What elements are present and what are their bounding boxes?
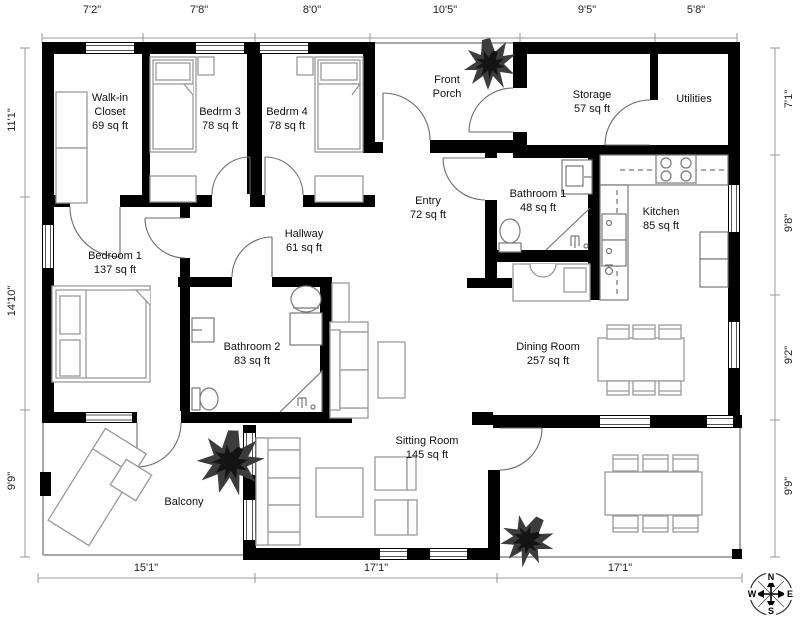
room-name: Utilities	[659, 93, 729, 107]
compass-south-label: S	[768, 606, 774, 616]
bed-bedrm3	[150, 57, 196, 152]
compass-rose: N S W E	[746, 571, 796, 617]
room-label-entry: Entry 72 sq ft	[393, 195, 463, 223]
room-name: Kitchen	[626, 206, 696, 220]
loveseat	[330, 283, 405, 418]
room-name: Bedrm 4	[252, 106, 322, 120]
room-label-sitting-room: Sitting Room 145 sq ft	[372, 435, 482, 463]
dim-right-3: 9'2"	[783, 329, 795, 381]
sofa	[256, 438, 300, 545]
room-area: 137 sq ft	[70, 264, 160, 278]
dim-top-2: 7'8"	[169, 4, 229, 16]
compass-west-label: W	[748, 589, 757, 599]
room-label-dining-room: Dining Room 257 sq ft	[498, 341, 598, 369]
ruler-bottom	[38, 573, 742, 583]
dim-top-1: 7'2"	[62, 4, 122, 16]
dim-left-3: 9'9"	[6, 455, 18, 507]
room-name: Bedrm 3	[185, 106, 255, 120]
floor-plan: N S W E 7'2" 7'8" 8'0" 10'5" 9'5" 5'8" 1…	[0, 0, 800, 619]
dresser-bedrm3	[150, 176, 196, 202]
room-name: Entry	[393, 195, 463, 209]
room-area: 257 sq ft	[498, 355, 598, 369]
room-area: 72 sq ft	[393, 209, 463, 223]
room-name: Hallway	[264, 228, 344, 242]
dim-top-5: 9'5"	[557, 4, 617, 16]
patio-table	[605, 455, 702, 532]
room-label-storage: Storage 57 sq ft	[557, 89, 627, 117]
room-name: Dining Room	[498, 341, 598, 355]
ruler-left	[20, 48, 30, 557]
room-area: 78 sq ft	[185, 120, 255, 134]
room-name: Sitting Room	[372, 435, 482, 449]
room-name: Bedroom 1	[70, 250, 160, 264]
dining-table	[598, 325, 684, 395]
room-label-utilities: Utilities	[659, 93, 729, 107]
room-name: Storage	[557, 89, 627, 103]
ruler-right	[770, 48, 780, 557]
dim-right-2: 9'8"	[783, 197, 795, 249]
lounge-chair	[48, 429, 152, 546]
room-area: 57 sq ft	[557, 103, 627, 117]
dim-top-3: 8'0"	[282, 4, 342, 16]
dim-right-1: 7'1"	[783, 73, 795, 125]
room-area: 83 sq ft	[212, 355, 292, 369]
room-label-bedrm3: Bedrm 3 78 sq ft	[185, 106, 255, 134]
desk-chair	[513, 264, 590, 301]
room-label-walk-in-closet: Walk-in Closet 69 sq ft	[80, 92, 140, 133]
room-name: Balcony	[144, 496, 224, 510]
ruler-top	[42, 33, 737, 43]
room-label-kitchen: Kitchen 85 sq ft	[626, 206, 696, 234]
room-name: Bathroom 1	[493, 188, 583, 202]
room-area: 69 sq ft	[80, 120, 140, 134]
room-area: 145 sq ft	[372, 449, 482, 463]
room-label-bathroom1: Bathroom 1 48 sq ft	[493, 188, 583, 216]
room-label-balcony: Balcony	[144, 496, 224, 510]
dim-left-1: 11'1"	[6, 94, 18, 146]
dim-bottom-3: 17'1"	[590, 562, 650, 574]
door-sitting-patio	[500, 428, 542, 470]
coffee-table	[316, 468, 363, 517]
door-bedrm3	[212, 157, 250, 195]
fridge	[700, 232, 728, 287]
room-label-hallway: Hallway 61 sq ft	[264, 228, 344, 256]
room-name: Front Porch	[422, 74, 472, 102]
nightstand-bedrm4	[297, 57, 313, 75]
door-bathroom1	[443, 158, 485, 200]
door-balcony	[137, 423, 181, 467]
door-bedrm4	[265, 157, 303, 195]
room-label-bedrm4: Bedrm 4 78 sq ft	[252, 106, 322, 134]
room-label-bathroom2: Bathroom 2 83 sq ft	[212, 341, 292, 369]
room-area: 85 sq ft	[626, 220, 696, 234]
bed-bedrm4	[315, 57, 363, 152]
room-name: Walk-in Closet	[80, 92, 140, 120]
room-area: 78 sq ft	[252, 120, 322, 134]
room-label-bedroom1: Bedroom 1 137 sq ft	[70, 250, 160, 278]
dim-bottom-2: 17'1"	[346, 562, 406, 574]
nightstand-bedrm3	[198, 57, 214, 75]
door-porch-storage	[469, 88, 513, 132]
dim-bottom-1: 15'1"	[116, 562, 176, 574]
room-area: 61 sq ft	[264, 242, 344, 256]
dim-top-4: 10'5"	[415, 4, 475, 16]
dim-top-6: 5'8"	[666, 4, 726, 16]
plant-icon	[490, 503, 563, 576]
dim-left-2: 14'10"	[6, 275, 18, 327]
room-label-front-porch: Front Porch	[422, 74, 472, 102]
compass-east-label: E	[787, 589, 793, 599]
room-area: 48 sq ft	[493, 202, 583, 216]
room-name: Bathroom 2	[212, 341, 292, 355]
bed-bedroom1	[52, 286, 150, 382]
dim-right-4: 9'9"	[783, 460, 795, 512]
armchair-2	[375, 500, 417, 535]
compass-north-label: N	[768, 572, 775, 582]
dresser-bedrm4	[315, 176, 363, 202]
